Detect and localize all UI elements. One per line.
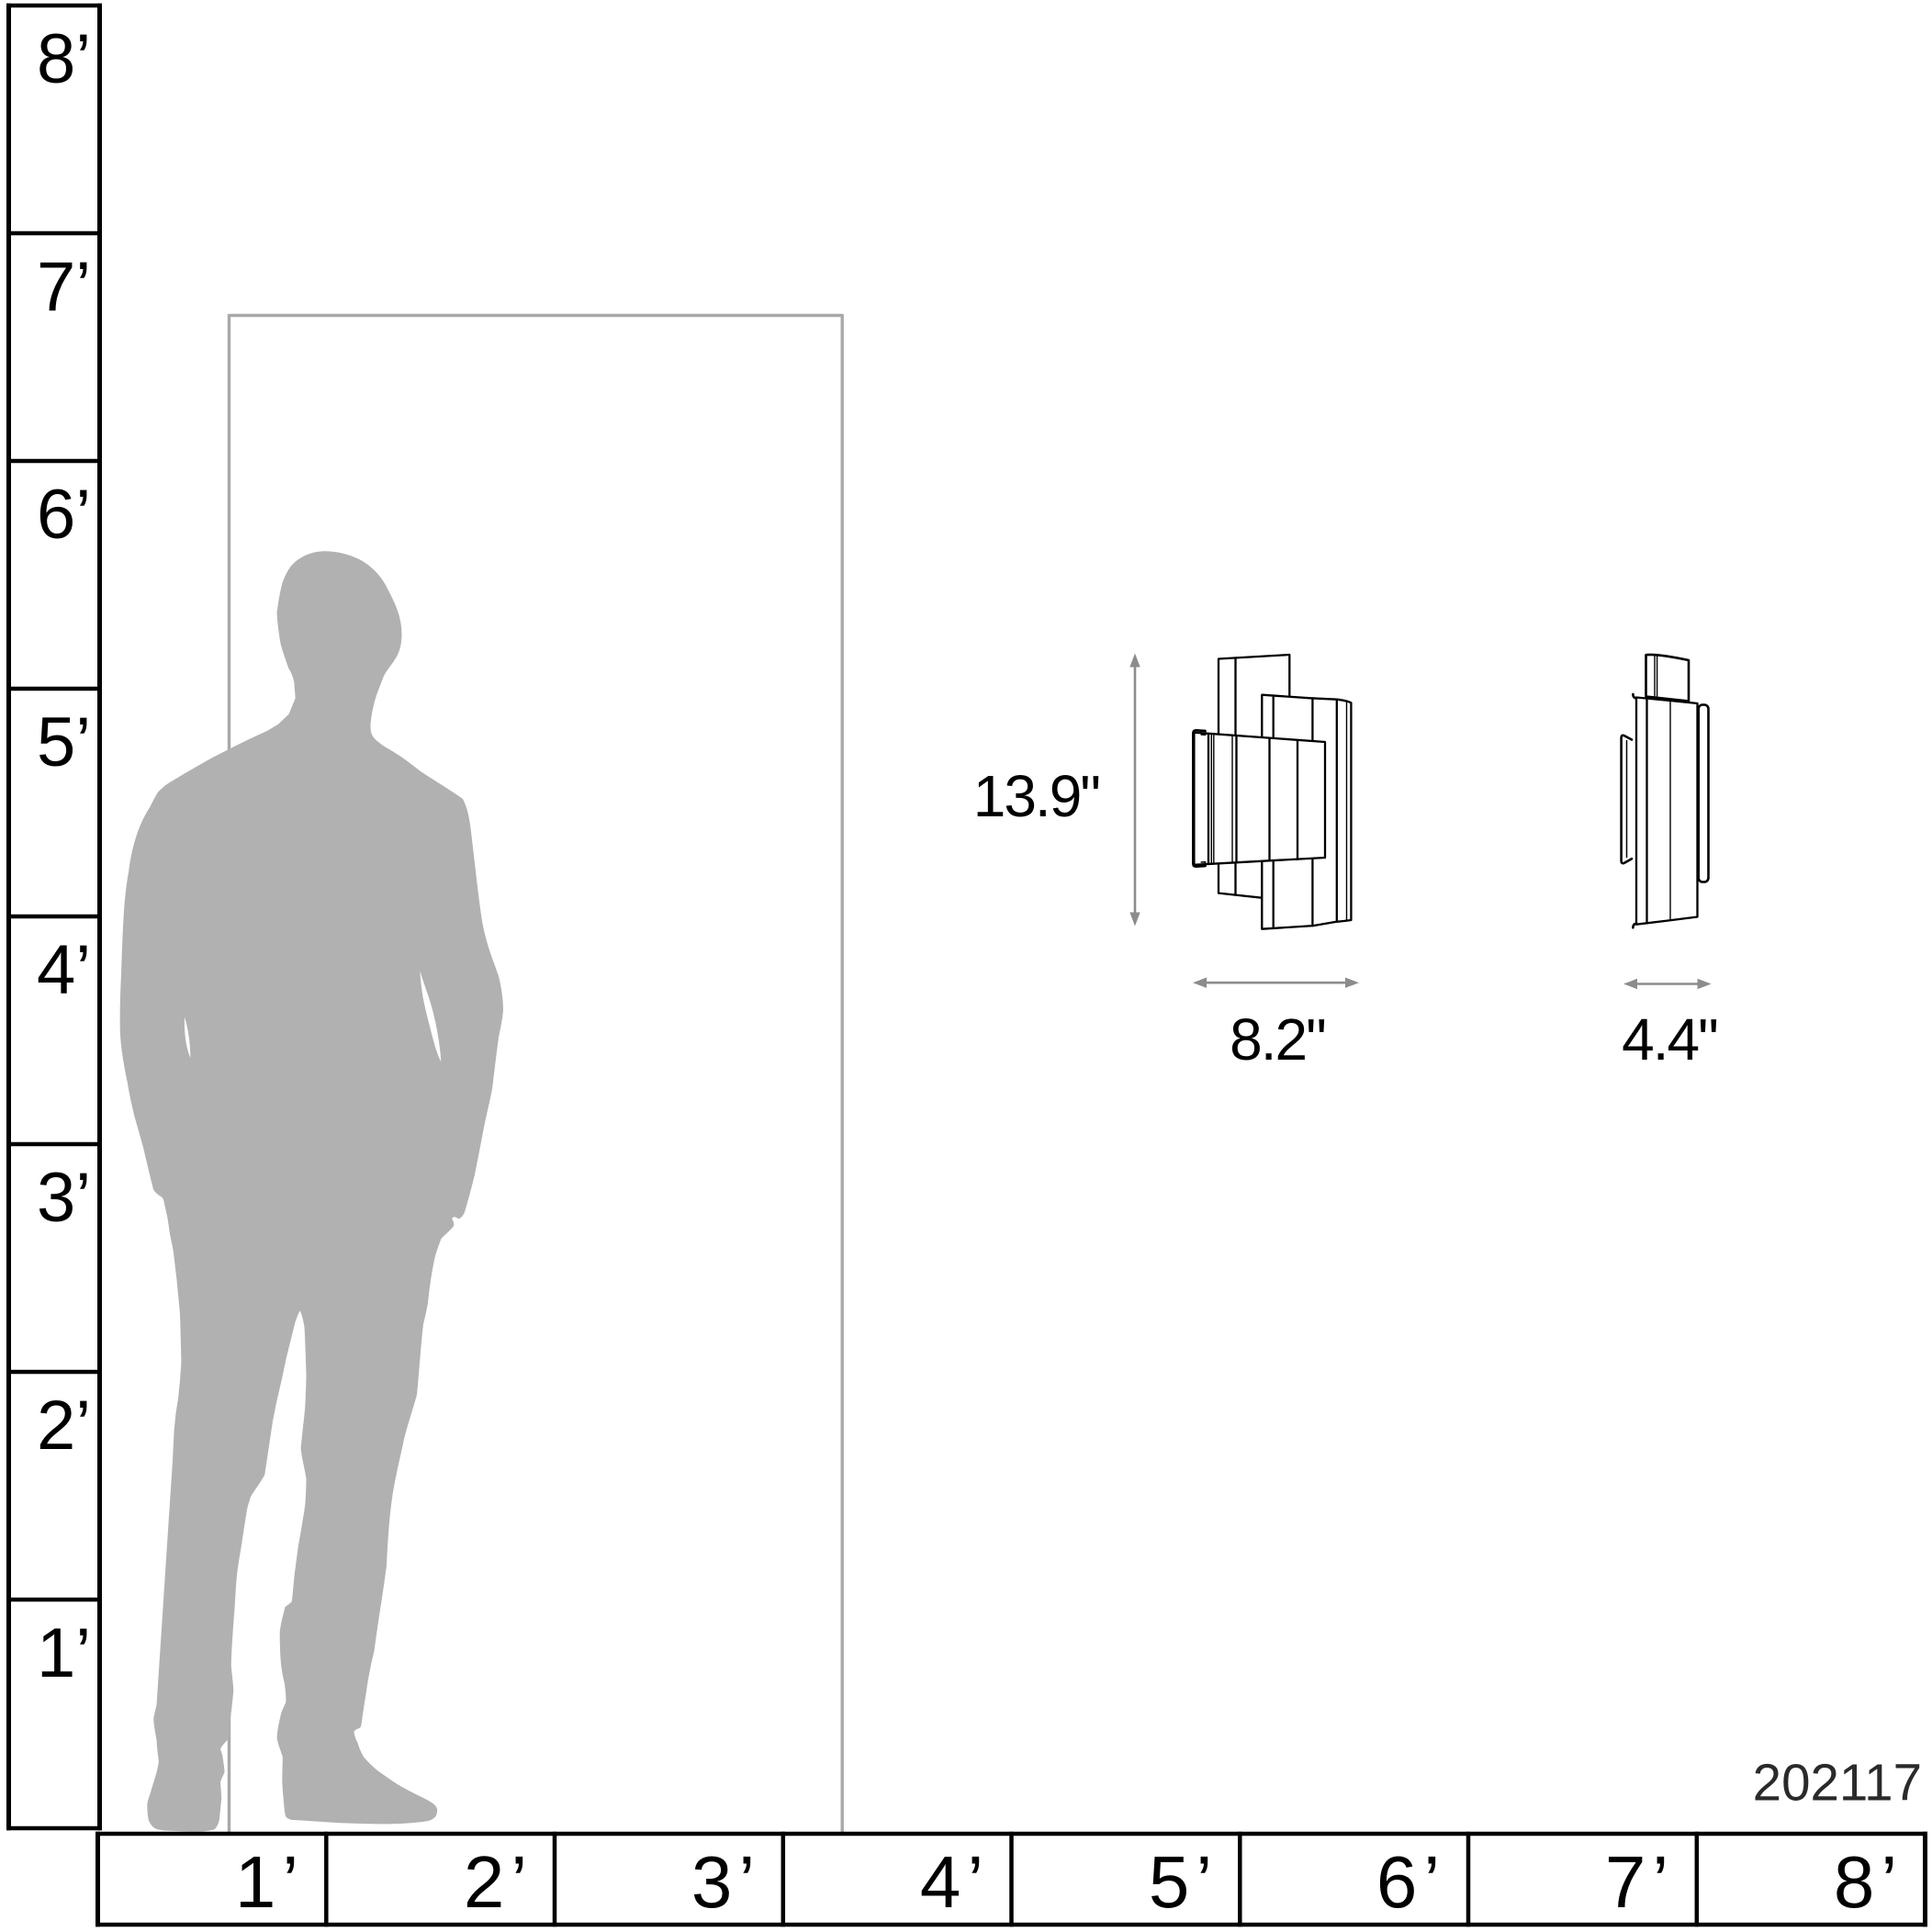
- svg-text:8.2": 8.2": [1230, 1006, 1325, 1073]
- svg-text:6’: 6’: [37, 476, 91, 554]
- svg-text:202117: 202117: [1753, 1754, 1922, 1812]
- svg-text:5’: 5’: [1149, 1841, 1219, 1923]
- svg-text:7’: 7’: [1605, 1841, 1675, 1923]
- svg-text:6’: 6’: [1376, 1841, 1446, 1923]
- svg-text:8’: 8’: [37, 20, 91, 98]
- svg-text:3’: 3’: [691, 1841, 761, 1923]
- svg-text:2’: 2’: [37, 1387, 91, 1465]
- svg-text:13.9": 13.9": [973, 763, 1099, 829]
- svg-text:1’: 1’: [37, 1614, 91, 1692]
- svg-text:1’: 1’: [235, 1841, 305, 1923]
- svg-text:4’: 4’: [920, 1841, 990, 1923]
- svg-text:8’: 8’: [1834, 1841, 1904, 1923]
- svg-text:7’: 7’: [37, 248, 91, 326]
- svg-text:4’: 4’: [37, 931, 91, 1009]
- svg-text:2’: 2’: [464, 1841, 534, 1923]
- svg-text:4.4": 4.4": [1622, 1006, 1717, 1073]
- svg-text:5’: 5’: [37, 703, 91, 781]
- svg-text:3’: 3’: [37, 1159, 91, 1237]
